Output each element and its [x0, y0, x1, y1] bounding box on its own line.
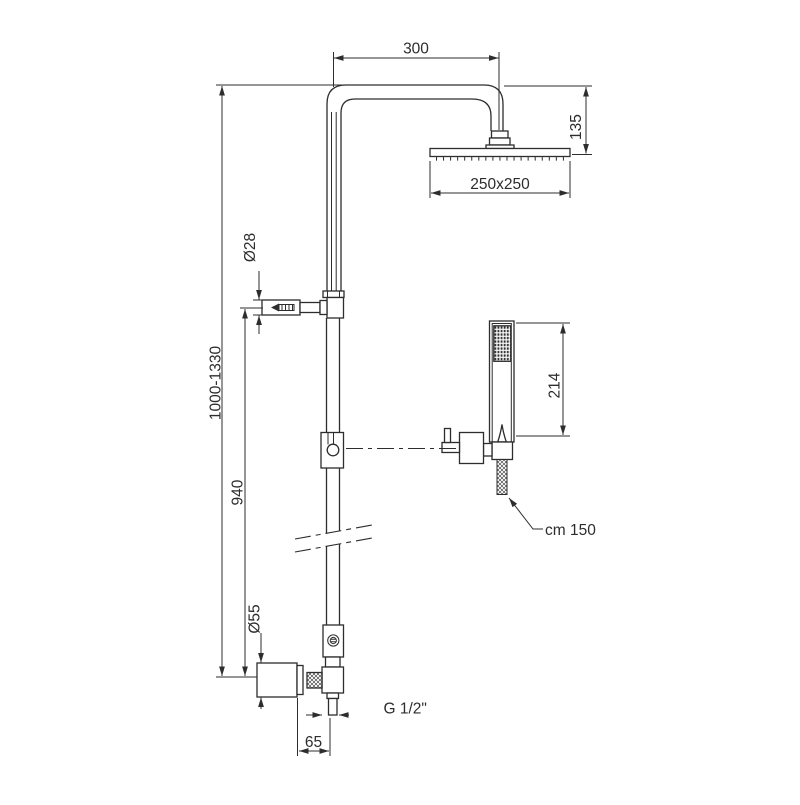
- flange-lip: [297, 666, 303, 695]
- diverter-body: [323, 625, 344, 657]
- slider-bracket: [321, 433, 344, 469]
- dim-300-ext: [334, 52, 500, 130]
- mixer-valve: [307, 657, 344, 715]
- shower-head-plate: [430, 149, 570, 157]
- bracket-ring: [320, 301, 327, 315]
- label-outlet-thread: G 1/2": [384, 701, 427, 718]
- valve-neck: [326, 657, 341, 667]
- label-bracket-diameter: Ø28: [242, 233, 259, 262]
- label-flange-diameter: Ø55: [247, 604, 264, 633]
- bracket-cylinder: [300, 303, 320, 313]
- outlet-nut: [327, 693, 339, 699]
- head-connector-nut-bottom: [490, 138, 511, 145]
- label-head-drop: 135: [568, 114, 585, 140]
- slider-knob: [327, 444, 339, 456]
- telescopic-inner-pipe: [332, 112, 337, 291]
- nozzle-ticks: [437, 157, 564, 161]
- outlet-pipe: [329, 699, 338, 716]
- break-mask: [296, 525, 374, 552]
- wall-bracket: [262, 291, 344, 318]
- head-connector-nut-top: [492, 131, 509, 138]
- label-head-size: 250x250: [470, 176, 530, 193]
- valve-body: [322, 667, 344, 693]
- dim-300: [334, 52, 500, 130]
- technical-drawing-page: 300 135 250x250 Ø28 1000-1330 940 214 Ø5…: [0, 0, 800, 800]
- bracket-collar: [323, 291, 344, 298]
- label-arm-width: 300: [403, 41, 429, 58]
- holder-body: [460, 433, 484, 464]
- hand-shower: [442, 321, 514, 495]
- label-total-height: 1000-1330: [208, 346, 225, 421]
- label-handshower-length: 214: [547, 372, 564, 398]
- shower-column-drawing: 300 135 250x250 Ø28 1000-1330 940 214 Ø5…: [0, 0, 800, 800]
- holder-lever: [445, 429, 451, 443]
- diverter: [323, 625, 344, 657]
- label-outlet-offset: 65: [305, 734, 322, 751]
- flange-body: [257, 663, 297, 697]
- riser-lower-pipe: [327, 318, 340, 625]
- hose-leader-line: [509, 498, 543, 529]
- holder-arm: [442, 443, 460, 453]
- label-bracket-distance: 940: [230, 479, 247, 505]
- pipe-segment-lower: [327, 468, 340, 625]
- bracket-body: [327, 298, 344, 319]
- shower-hose-hatch: [497, 460, 507, 495]
- pipe-segment-upper: [327, 318, 340, 433]
- label-hose-length: cm 150: [545, 522, 596, 539]
- shower-arm-inner: [341, 99, 491, 291]
- wall-flange: [257, 663, 303, 697]
- wand-clamp: [492, 442, 513, 460]
- dimension-labels: 300 135 250x250 Ø28 1000-1330 940 214 Ø5…: [208, 41, 597, 752]
- holder-connector: [484, 444, 493, 457]
- pipe-break: [295, 525, 375, 553]
- overhead-shower: [430, 131, 570, 161]
- spray-face-grid: [494, 326, 511, 362]
- threaded-nipple-hatch: [307, 673, 322, 689]
